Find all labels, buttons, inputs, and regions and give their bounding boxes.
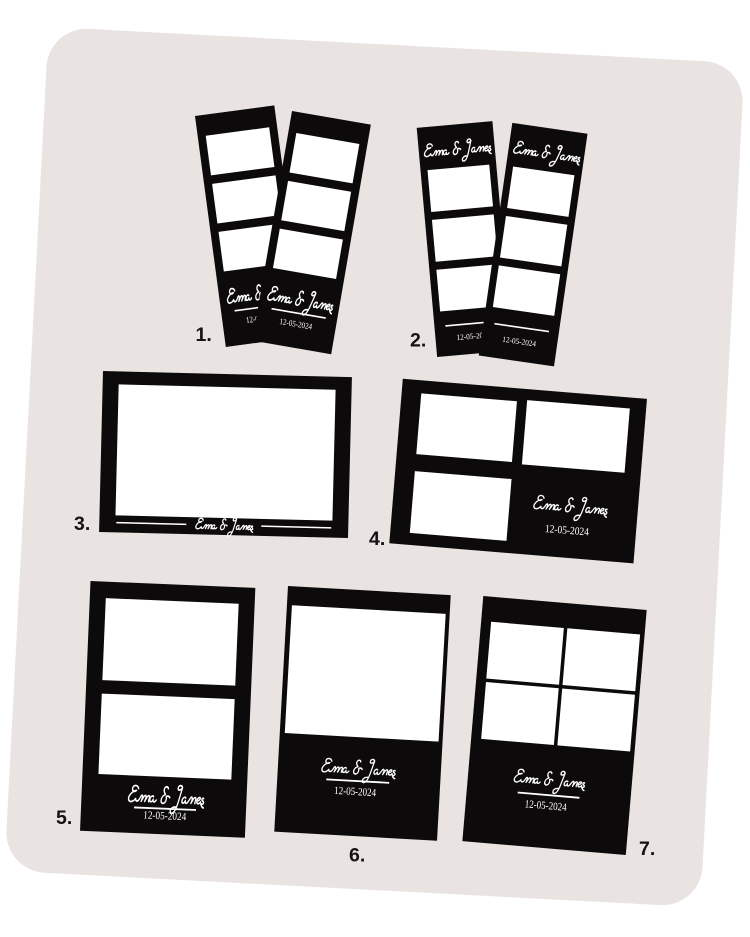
svg-text:3.: 3. (74, 513, 90, 535)
svg-text:12-05-2024: 12-05-2024 (143, 809, 187, 823)
svg-text:12-05-2024: 12-05-2024 (334, 785, 377, 799)
svg-text:6.: 6. (349, 845, 365, 867)
svg-text:4.: 4. (369, 528, 385, 550)
svg-text:7.: 7. (639, 838, 655, 860)
svg-text:2.: 2. (410, 330, 426, 352)
svg-text:1.: 1. (196, 324, 212, 346)
svg-text:5.: 5. (56, 807, 72, 829)
